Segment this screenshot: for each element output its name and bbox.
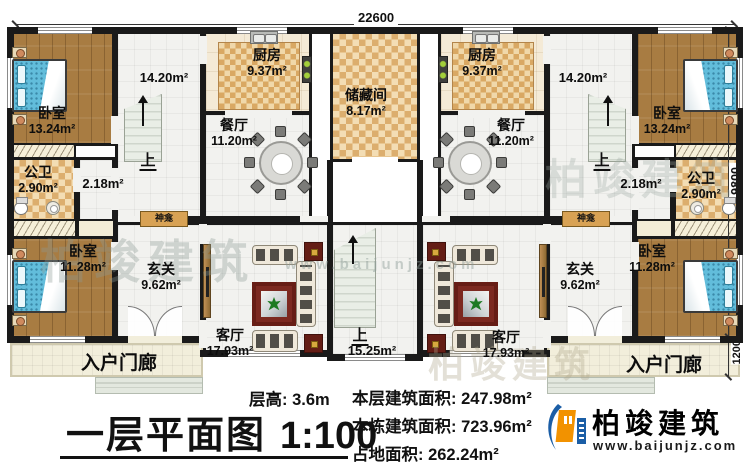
dim-right-porch-value: 1200 — [731, 340, 743, 364]
brand-logo-icon — [544, 400, 590, 454]
dining-chair — [275, 126, 286, 137]
label-bath-left: 公卫 2.90m² — [18, 165, 58, 195]
opening-foyer-living-right-bottom — [543, 320, 551, 348]
dining-chair — [496, 157, 507, 168]
label-corridor-right-area: 2.18m² — [620, 176, 661, 191]
door-kitchen-right — [543, 36, 551, 64]
door-bedroom-top-left — [111, 116, 119, 144]
porch-steps-right — [547, 377, 655, 394]
wall-top — [7, 27, 743, 34]
nightstand — [12, 248, 27, 259]
double-bed — [12, 248, 67, 326]
floor-plan-page: 神龛 神龛 柏竣建筑 www.baijunjz.com 柏竣建筑 柏竣建筑 卧室… — [0, 0, 750, 468]
round-dining-table — [448, 141, 492, 185]
duvet — [40, 61, 65, 110]
pillow — [17, 88, 26, 107]
opening-hall-foyer-left — [118, 216, 141, 222]
window — [658, 27, 712, 34]
tv-cabinet — [203, 244, 211, 318]
kitchen-sink — [250, 31, 278, 44]
double-door-left — [128, 306, 182, 336]
side-table — [427, 334, 446, 353]
dining-chair — [275, 189, 286, 200]
sofa-set — [252, 242, 324, 356]
dining-chair — [439, 179, 455, 195]
drawing-title: 一层平面图 — [66, 415, 266, 457]
double-bed — [683, 47, 738, 125]
stairs-up-arrow — [352, 242, 354, 264]
dining-chair — [464, 126, 475, 137]
dining-chair — [433, 157, 444, 168]
pillow — [724, 266, 733, 285]
door-leaf — [155, 306, 182, 336]
floor-height-note: 层高: 3.6m — [249, 386, 330, 410]
stairs-up-arrow — [607, 102, 609, 126]
nightstand — [723, 47, 738, 58]
dining-chair — [250, 179, 266, 195]
side-table — [304, 334, 323, 353]
land-area-note: 占地面积: 262.24m² — [352, 441, 499, 465]
label-stairhall-right-area: 14.20m² — [559, 70, 607, 85]
pillow — [724, 65, 733, 84]
title-underline — [60, 456, 348, 459]
window — [665, 336, 720, 343]
mattress — [683, 59, 738, 112]
sofa — [434, 261, 454, 327]
label-stairhall-left-area: 14.20m² — [140, 70, 188, 85]
label-stairs-up-left: 上 — [139, 153, 156, 171]
label-dining-left: 餐厅 11.20m² — [211, 118, 257, 148]
kitchen-stove — [302, 56, 312, 83]
nightstand — [12, 114, 27, 125]
kitchen-stove — [438, 56, 448, 83]
label-dining-right: 餐厅 11.20m² — [488, 118, 534, 148]
duvet — [685, 262, 710, 311]
dining-chair — [244, 157, 255, 168]
opening-hall-foyer-right — [609, 216, 632, 222]
door-bath-left — [73, 168, 81, 192]
nightstand — [12, 315, 27, 326]
window — [30, 336, 85, 343]
toilet — [722, 202, 736, 215]
porch-steps-left — [95, 377, 203, 394]
dining-chair — [307, 157, 318, 168]
brand-website: www.baijunjz.com — [593, 438, 737, 453]
drawing-title-block: 一层平面图1:100 — [66, 404, 377, 459]
label-foyer-right: 玄关 9.62m² — [560, 262, 600, 292]
floor-area-note: 本层建筑面积: 247.98m² — [352, 385, 532, 409]
stairs-up-arrow — [142, 102, 144, 126]
door-bedroom-top-right — [631, 116, 639, 144]
label-stairs-up-right: 上 — [593, 153, 610, 171]
entrance-opening-left — [128, 336, 182, 343]
door-kitchen-left — [199, 36, 207, 64]
label-bedroom-top-right: 卧室 13.24m² — [644, 106, 691, 136]
label-living-left: 客厅 17.93m² — [207, 328, 254, 358]
tv-cabinet — [539, 244, 547, 318]
opening-foyer-living-left-top — [199, 224, 207, 244]
nightstand — [723, 114, 738, 125]
dim-top-value: 22600 — [354, 10, 398, 25]
label-kitchen-left: 厨房 9.37m² — [247, 48, 287, 78]
pillow — [17, 289, 26, 308]
dining-chair — [297, 179, 313, 195]
door-bedroom-bottom-left — [111, 242, 119, 270]
label-storage: 储藏间 8.17m² — [345, 88, 387, 118]
label-bedroom-top-left: 卧室 13.24m² — [29, 106, 76, 136]
sofa — [296, 261, 316, 327]
label-bath-right: 公卫 2.90m² — [681, 171, 721, 201]
opening-dining-living-right — [422, 216, 450, 222]
label-foyer-left: 玄关 9.62m² — [141, 262, 181, 292]
side-table — [427, 242, 446, 261]
sofa — [452, 245, 498, 265]
mattress — [683, 260, 738, 313]
brand-name: 柏竣建筑 — [592, 402, 724, 442]
dining-chair — [486, 179, 502, 195]
double-bed — [683, 248, 738, 326]
bathroom-sink — [690, 201, 704, 215]
door-leaf — [595, 306, 622, 336]
kitchen-sink — [472, 31, 500, 44]
opening-dining-living-left — [300, 216, 328, 222]
label-stairs-center-area: 15.25m² — [348, 343, 396, 358]
pillow — [17, 266, 26, 285]
door-storage — [352, 157, 398, 165]
pillow — [17, 65, 26, 84]
pillow — [724, 88, 733, 107]
dining-chair — [297, 132, 313, 148]
window — [38, 27, 92, 34]
toilet — [14, 202, 28, 215]
sofa — [252, 245, 298, 265]
double-door-right — [568, 306, 622, 336]
shrine-left: 神龛 — [140, 211, 188, 227]
pillow — [724, 289, 733, 308]
nightstand — [723, 248, 738, 259]
mattress — [12, 260, 67, 313]
label-bedroom-bottom-right: 卧室 11.28m² — [629, 244, 675, 274]
door-leaf — [568, 306, 595, 336]
nightstand — [12, 47, 27, 58]
label-corridor-left-area: 2.18m² — [82, 176, 123, 191]
label-porch-right: 入户门廊 — [626, 350, 702, 377]
duvet — [685, 61, 710, 110]
opening-foyer-living-right-top — [543, 224, 551, 244]
door-bath-right — [669, 168, 677, 192]
entrance-opening-right — [568, 336, 622, 343]
label-porch-left: 入户门廊 — [81, 348, 157, 375]
nightstand — [723, 315, 738, 326]
dining-chair — [464, 189, 475, 200]
dim-line-right-porch — [728, 337, 729, 377]
label-living-right: 客厅 17.93m² — [483, 330, 530, 360]
label-bedroom-bottom-left: 卧室 11.28m² — [60, 244, 106, 274]
dining-chair — [439, 132, 455, 148]
side-table — [304, 242, 323, 261]
round-dining-table — [259, 141, 303, 185]
label-kitchen-right: 厨房 9.37m² — [462, 48, 502, 78]
door-leaf — [128, 306, 155, 336]
sofa — [252, 330, 298, 352]
building-area-note: 本栋建筑面积: 723.96m² — [352, 413, 532, 437]
bathroom-sink — [46, 201, 60, 215]
shrine-right: 神龛 — [562, 211, 610, 227]
